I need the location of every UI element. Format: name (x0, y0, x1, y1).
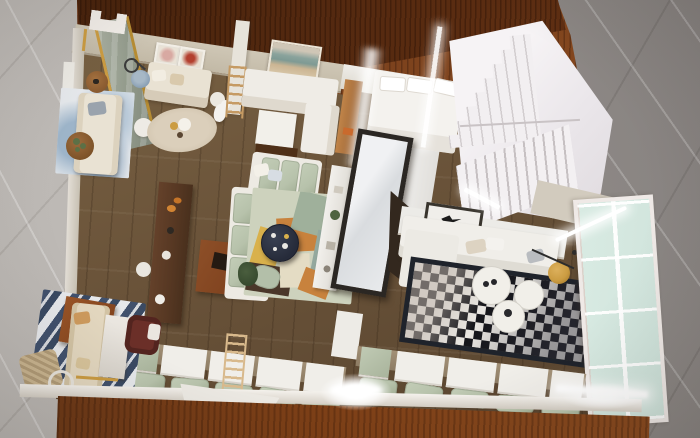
bench-back-white (394, 351, 445, 387)
striped-pillow (267, 169, 282, 182)
plant-leaves (80, 143, 86, 149)
shelf-bowl (323, 265, 331, 273)
table-cup (491, 279, 497, 285)
table-plate (271, 233, 276, 238)
plant-leaves (73, 138, 80, 145)
potted-plant (238, 262, 258, 286)
shelf-box (334, 186, 344, 194)
sofa-pillow (152, 69, 167, 81)
round-white-table-large (472, 266, 511, 305)
left-console-desk (62, 62, 74, 91)
table-plate (282, 243, 288, 249)
table-cup (483, 281, 489, 287)
sideboard-decor-orange (173, 197, 181, 204)
gray-pillow (87, 101, 107, 116)
glass-panel-wall (573, 194, 669, 427)
sideboard-decor-orange (167, 205, 177, 213)
dark-vase (504, 309, 512, 317)
sofa-pillow (169, 73, 184, 86)
sideboard-decor-dark (167, 227, 175, 235)
art-image-1 (157, 46, 178, 64)
gold-decor (170, 122, 178, 130)
bench-back-sage (358, 346, 391, 379)
plant-leaves (75, 147, 80, 152)
shelf-box (326, 241, 336, 250)
apartment-3d-render (0, 0, 700, 438)
bench-back-white (497, 364, 548, 400)
navy-round-coffee-table (261, 224, 299, 262)
sideboard-decor-plate (155, 294, 166, 305)
table-decor-gold (284, 234, 289, 239)
shelf-orange-decor (343, 127, 354, 135)
glass-panes (577, 199, 664, 423)
white-stool-small (136, 262, 151, 277)
white-bowl-decor (178, 118, 191, 131)
table-plate (273, 247, 277, 251)
white-coffee-table (255, 110, 297, 148)
bed-pillow (379, 76, 406, 93)
tan-pillow (75, 357, 91, 370)
art-image-2 (181, 50, 202, 68)
sideboard-decor-plate (161, 250, 171, 260)
bench-back-white (160, 345, 207, 380)
wood-side-table-1 (86, 71, 108, 93)
shelf-plant (329, 209, 340, 220)
white-pillow (485, 237, 504, 251)
blue-barrel-chair (131, 70, 150, 88)
chair-pillow (147, 323, 161, 341)
table-decor (93, 79, 99, 84)
white-sectional-vertical (300, 102, 340, 156)
round-white-table-small (492, 300, 525, 333)
dark-decor (177, 132, 183, 138)
orange-pillow (73, 311, 91, 325)
